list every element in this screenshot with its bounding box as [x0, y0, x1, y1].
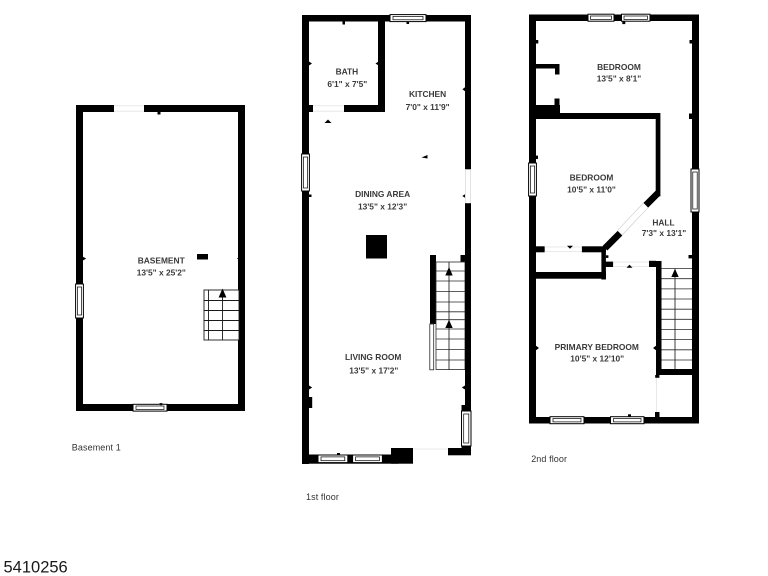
svg-text:BEDROOM: BEDROOM — [597, 62, 641, 72]
svg-text:7'3" x 13'1": 7'3" x 13'1" — [642, 228, 687, 238]
svg-text:Basement 1: Basement 1 — [72, 442, 121, 452]
svg-text:HALL: HALL — [652, 217, 674, 227]
svg-text:10'5" x 11'0": 10'5" x 11'0" — [567, 185, 616, 195]
svg-text:DINING AREA: DINING AREA — [355, 189, 410, 199]
svg-text:6'1" x 7'5": 6'1" x 7'5" — [327, 79, 367, 89]
svg-text:PRIMARY BEDROOM: PRIMARY BEDROOM — [555, 342, 639, 352]
svg-text:5410256: 5410256 — [4, 559, 68, 576]
svg-text:KITCHEN: KITCHEN — [409, 89, 446, 99]
svg-text:BEDROOM: BEDROOM — [570, 173, 614, 183]
svg-text:13'5" x 17'2": 13'5" x 17'2" — [349, 366, 398, 376]
svg-text:13'5" x 12'3": 13'5" x 12'3" — [358, 201, 407, 211]
svg-text:BASEMENT: BASEMENT — [138, 255, 186, 265]
svg-text:10'5" x 12'10": 10'5" x 12'10" — [570, 354, 624, 364]
svg-text:7'0" x 11'9": 7'0" x 11'9" — [406, 102, 450, 112]
svg-text:13'5" x 8'1": 13'5" x 8'1" — [597, 74, 642, 84]
svg-text:BATH: BATH — [336, 66, 359, 76]
svg-text:1st floor: 1st floor — [306, 492, 339, 502]
svg-text:2nd floor: 2nd floor — [531, 454, 567, 464]
svg-text:LIVING ROOM: LIVING ROOM — [345, 352, 401, 362]
svg-text:13'5" x 25'2": 13'5" x 25'2" — [137, 267, 186, 277]
